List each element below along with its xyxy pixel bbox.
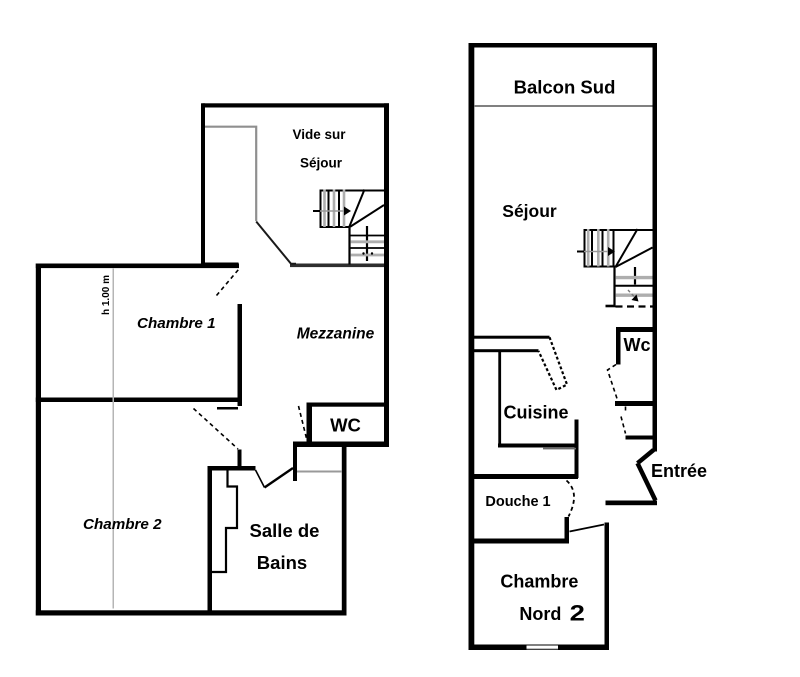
svg-text:Cuisine: Cuisine (503, 403, 568, 423)
svg-text:Bains: Bains (257, 552, 307, 573)
svg-text:Chambre 2: Chambre 2 (83, 516, 162, 533)
svg-text:Séjour: Séjour (300, 156, 343, 171)
svg-text:WC: WC (330, 415, 361, 436)
svg-text:Vide sur: Vide sur (292, 127, 346, 142)
svg-text:Douche 1: Douche 1 (485, 494, 550, 510)
svg-text:Salle de: Salle de (250, 520, 320, 541)
svg-text:h 1.00 m: h 1.00 m (101, 275, 112, 315)
svg-text:Balcon Sud: Balcon Sud (514, 77, 616, 98)
svg-text:Wc: Wc (624, 335, 651, 355)
svg-text:Mezzanine: Mezzanine (297, 326, 375, 343)
svg-text:2: 2 (570, 601, 585, 626)
svg-text:Nord: Nord (519, 604, 561, 624)
svg-text:Séjour: Séjour (502, 201, 557, 221)
svg-text:Chambre 1: Chambre 1 (137, 315, 216, 332)
svg-text:Chambre: Chambre (500, 572, 578, 592)
svg-text:Entrée: Entrée (651, 461, 707, 481)
